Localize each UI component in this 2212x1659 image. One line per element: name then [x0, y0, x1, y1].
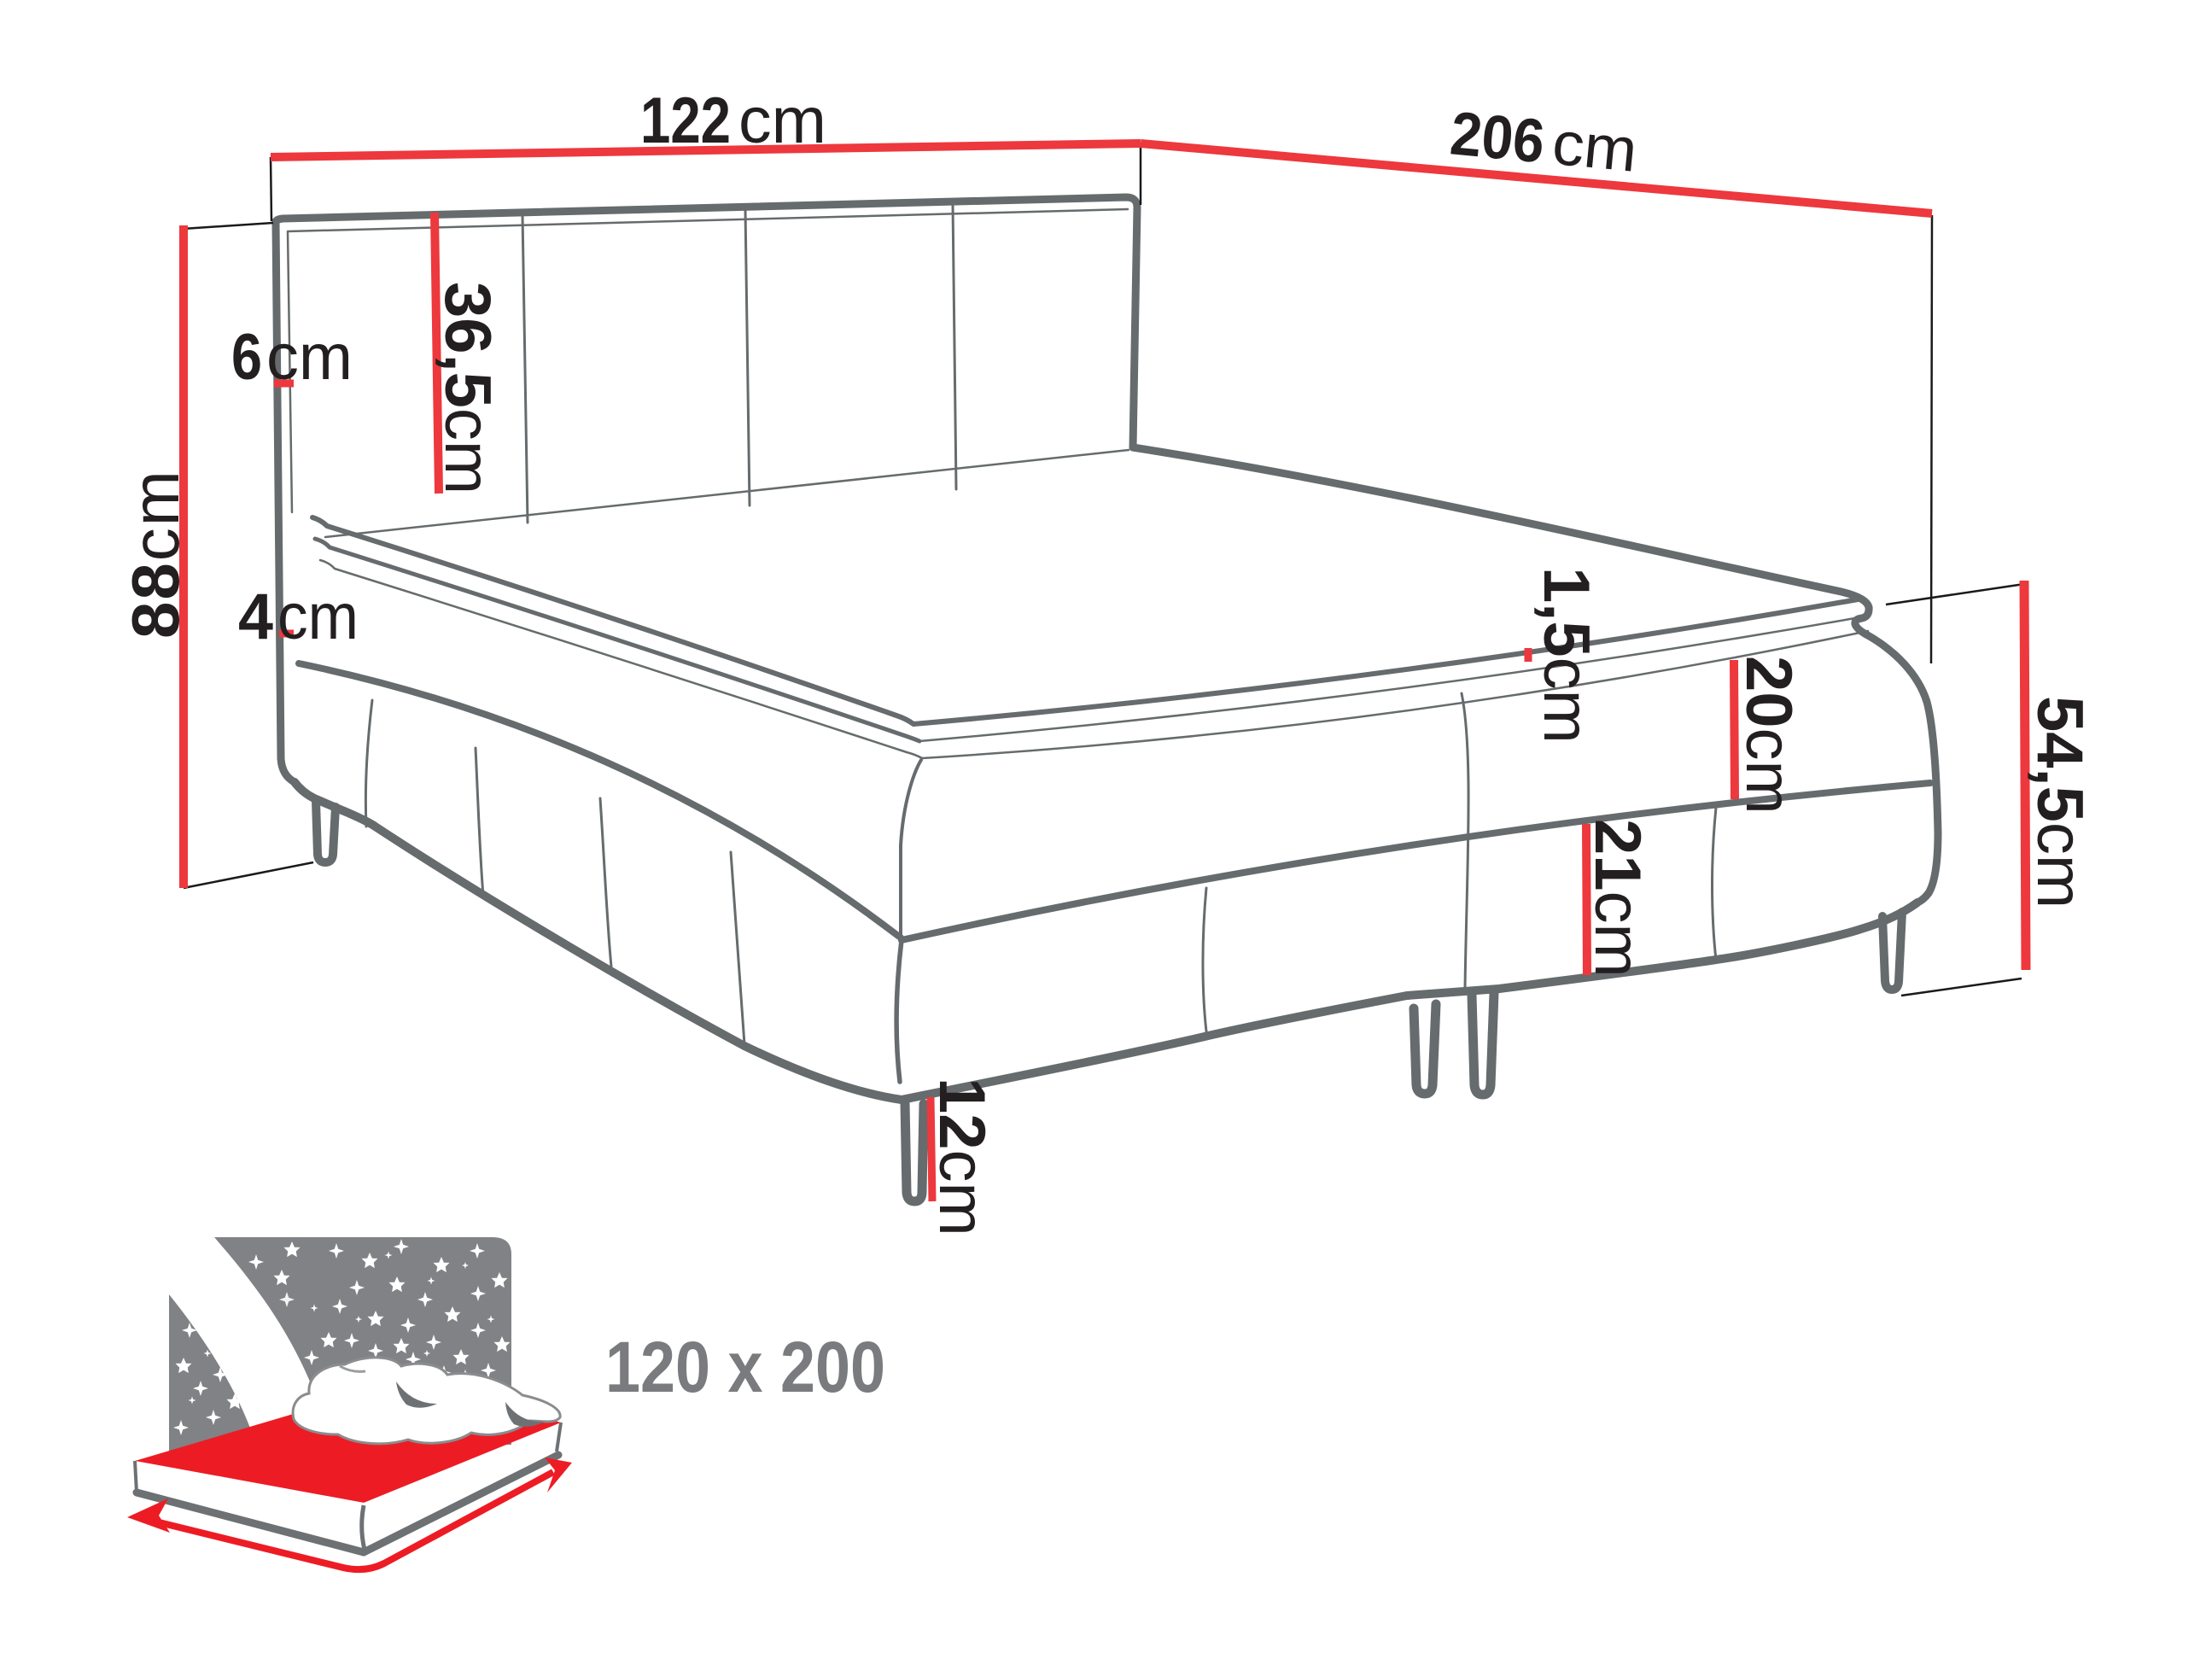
- svg-text:120 x 200: 120 x 200: [605, 1327, 885, 1407]
- svg-text:4cm: 4cm: [238, 581, 359, 653]
- svg-text:12cm: 12cm: [925, 1078, 998, 1236]
- svg-text:54,5cm: 54,5cm: [2023, 696, 2096, 908]
- svg-text:1,5cm: 1,5cm: [1530, 567, 1602, 744]
- svg-text:6cm: 6cm: [231, 321, 353, 394]
- svg-text:21cm: 21cm: [1581, 819, 1654, 978]
- svg-text:20cm: 20cm: [1732, 656, 1805, 815]
- svg-text:88cm: 88cm: [118, 469, 193, 639]
- svg-text:36,5cm: 36,5cm: [431, 282, 504, 494]
